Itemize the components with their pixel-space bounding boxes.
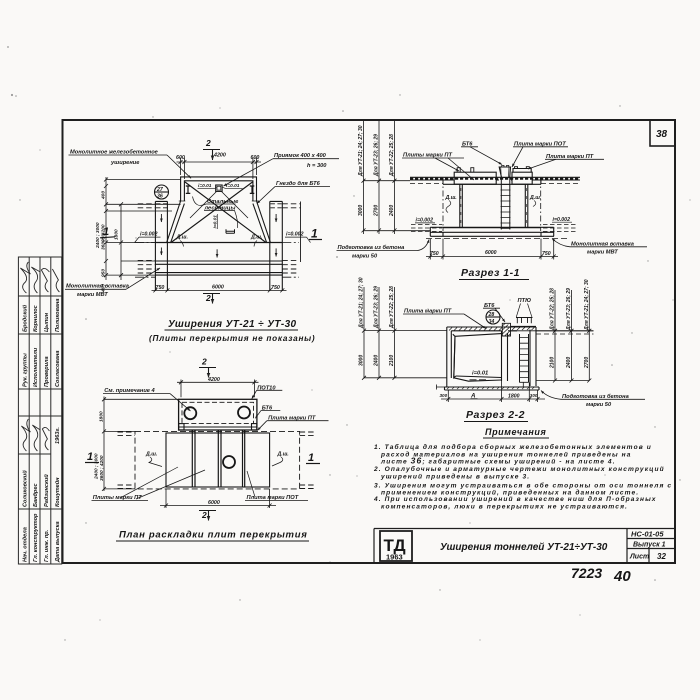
svg-text:2400 ; 3000: 2400 ; 3000 [95,222,101,249]
svg-text:Кошутейн: Кошутейн [54,477,61,507]
svg-text:36: 36 [157,194,163,200]
svg-text:i=0.002: i=0.002 [140,232,158,238]
svg-text:Для УТ-21; 24; 27; 30: Для УТ-21; 24; 27; 30 [584,279,590,331]
svg-text:Для УТ-21; 24; 27; 30: Для УТ-21; 24; 27; 30 [358,125,364,177]
svg-text:2: 2 [201,357,207,367]
svg-text:Для УТ-22; 25; 28: Для УТ-22; 25; 28 [389,286,395,329]
svg-text:марки МВТ: марки МВТ [587,249,618,255]
svg-text:Для УТ-23; 26; 29: Для УТ-23; 26; 29 [374,286,380,329]
svg-text:Соликовский: Соликовский [21,470,28,507]
svg-text:4200: 4200 [207,377,220,383]
svg-text:1: 1 [311,227,318,241]
svg-text:4200: 4200 [213,153,226,159]
svg-text:600: 600 [176,155,185,161]
svg-text:План раскладки плит перекры: План раскладки плит перекрытия [119,530,308,541]
svg-text:Цыпин: Цыпин [44,312,50,332]
svg-text:34: 34 [489,319,495,325]
svg-text:марки 50: марки 50 [352,253,378,259]
svg-text:Проверила: Проверила [44,356,50,387]
svg-text:2400: 2400 [389,205,395,217]
svg-text:2700: 2700 [374,205,380,217]
svg-text:Согласована: Согласована [55,351,61,387]
svg-text:i=0.01: i=0.01 [472,371,488,377]
svg-text:3000: 3000 [359,355,365,366]
svg-text:6000: 6000 [212,285,224,291]
svg-text:Гнездо для БТ6: Гнездо для БТ6 [276,181,321,187]
svg-text:27: 27 [156,187,164,193]
svg-text:2: 2 [205,138,211,148]
svg-text:Для УТ-23; 26; 29: Для УТ-23; 26; 29 [374,134,380,177]
svg-text:Для УТ-23; 26; 29: Для УТ-23; 26; 29 [566,288,572,331]
svg-text:38: 38 [656,129,668,140]
svg-text:300: 300 [530,393,538,398]
svg-text:Радзинский: Радзинский [43,474,50,507]
svg-text:Подготовка из бетона: Подготовка из бетона [562,393,629,400]
svg-text:3. Уширения могут устраивать: 3. Уширения могут устраиваться в обе сто… [374,482,672,490]
svg-text:2: 2 [205,293,211,303]
svg-text:4. При использовании уширени: 4. При использовании уширений в качестве… [373,495,657,503]
svg-text:Бродский: Бродский [21,304,28,332]
svg-text:Лист: Лист [629,554,649,561]
svg-text:уширений приведены в выпуск: уширений приведены в выпуске 3. [380,472,530,480]
svg-text:750: 750 [271,285,280,291]
svg-text:950: 950 [101,269,107,277]
svg-text:Приямок 400 х 400: Приямок 400 х 400 [274,153,327,159]
svg-text:марки 50: марки 50 [586,402,612,408]
svg-text:7223: 7223 [571,565,602,581]
svg-text:6000: 6000 [208,500,220,506]
svg-text:Д.ш.: Д.ш. [145,452,157,458]
svg-text:300: 300 [440,393,448,398]
svg-text:Д.ш.: Д.ш. [529,195,541,201]
svg-text:32: 32 [657,552,666,561]
svg-text:Подготовка из бетона: Подготовка из бетона [338,244,405,251]
svg-text:i=0.002: i=0.002 [286,232,304,238]
svg-text:750: 750 [156,285,165,291]
svg-text:Д.ш.: Д.ш. [250,235,263,241]
svg-text:6000: 6000 [485,250,497,256]
svg-text:Для УТ-22; 25; 28: Для УТ-22; 25; 28 [550,288,556,331]
svg-text:600: 600 [251,155,260,161]
svg-text:1800: 1800 [99,411,105,422]
svg-text:Д.ш.: Д.ш. [445,195,457,201]
svg-text:Плиты марки ПТ: Плиты марки ПТ [93,495,142,501]
svg-text:марки МВТ: марки МВТ [77,292,108,298]
svg-text:Рук. группы: Рук. группы [22,353,28,387]
svg-text:750: 750 [542,251,551,257]
svg-text:См. примечание 4: См. примечание 4 [104,388,155,394]
svg-text:Поликована: Поликована [55,299,61,333]
svg-text:Д.ш.: Д.ш. [176,235,189,241]
svg-text:3600 ; 4200: 3600 ; 4200 [101,224,107,250]
svg-text:40: 40 [613,568,631,585]
svg-text:2: 2 [201,510,207,520]
svg-text:Нач. отдела: Нач. отдела [22,527,28,562]
svg-text:750: 750 [430,251,439,257]
svg-text:Гл. конструктор: Гл. конструктор [33,513,39,562]
svg-text:Для УТ-21; 24; 27; 30: Для УТ-21; 24; 27; 30 [359,277,365,329]
svg-text:2100: 2100 [550,357,556,369]
svg-text:Разрез 1-1: Разрез 1-1 [461,267,520,279]
svg-text:уширение: уширение [110,160,139,166]
svg-text:400: 400 [101,191,107,200]
svg-text:1800: 1800 [114,229,120,240]
svg-text:Примечания: Примечания [485,427,546,437]
svg-text:2100: 2100 [389,355,395,367]
svg-text:2400: 2400 [566,357,572,369]
svg-text:Уширения тоннелей УТ-21÷УТ-3: Уширения тоннелей УТ-21÷УТ-30 [440,542,608,553]
svg-text:Д.ш.: Д.ш. [277,452,289,458]
svg-text:28: 28 [488,312,495,318]
svg-text:Уширения УТ-21 ÷ УТ-30: Уширения УТ-21 ÷ УТ-30 [168,319,297,330]
svg-text:Для УТ-22; 25; 28: Для УТ-22; 25; 28 [389,134,395,177]
svg-text:ПТЮ: ПТЮ [518,298,532,304]
svg-text:1800: 1800 [508,393,520,399]
svg-text:1: 1 [87,451,93,463]
svg-text:Бандрес: Бандрес [33,482,39,507]
svg-text:3000: 3000 [358,205,364,216]
svg-text:Монолитная вставка: Монолитная вставка [66,284,129,290]
svg-text:компенсаторов, люки в перек: компенсаторов, люки в перекрытиях не уст… [381,503,628,510]
svg-text:(Плиты перекрытия не показа: (Плиты перекрытия не показаны) [149,334,315,343]
svg-text:3600 ; 4200: 3600 ; 4200 [99,455,105,481]
svg-text:Разрез 2-2: Разрез 2-2 [466,409,525,421]
svg-text:2. Опалубочные и арматурные: 2. Опалубочные и арматурные чертежи моно… [373,465,665,473]
svg-text:2700: 2700 [584,357,590,369]
svg-text:Дата выпуска: Дата выпуска [55,521,61,563]
svg-text:2400: 2400 [374,355,380,367]
svg-text:Исполнители: Исполнители [33,347,39,387]
svg-text:Монолитное железобетонное: Монолитное железобетонное [70,149,158,156]
svg-text:Корнилос: Корнилос [33,304,39,332]
svg-text:h = 300: h = 300 [307,163,327,169]
svg-text:2400 ; 3000: 2400 ; 3000 [94,453,100,480]
svg-text:Гл. инж. пр.: Гл. инж. пр. [44,529,50,562]
svg-text:НС-01-05: НС-01-05 [631,530,664,539]
svg-text:Выпуск 1: Выпуск 1 [633,542,666,549]
svg-text:1963: 1963 [386,553,403,562]
svg-text:1. Таблица для подбора сбор: 1. Таблица для подбора сборных железобет… [374,443,652,451]
svg-text:1: 1 [308,452,314,464]
svg-text:1963г.: 1963г. [55,427,61,444]
